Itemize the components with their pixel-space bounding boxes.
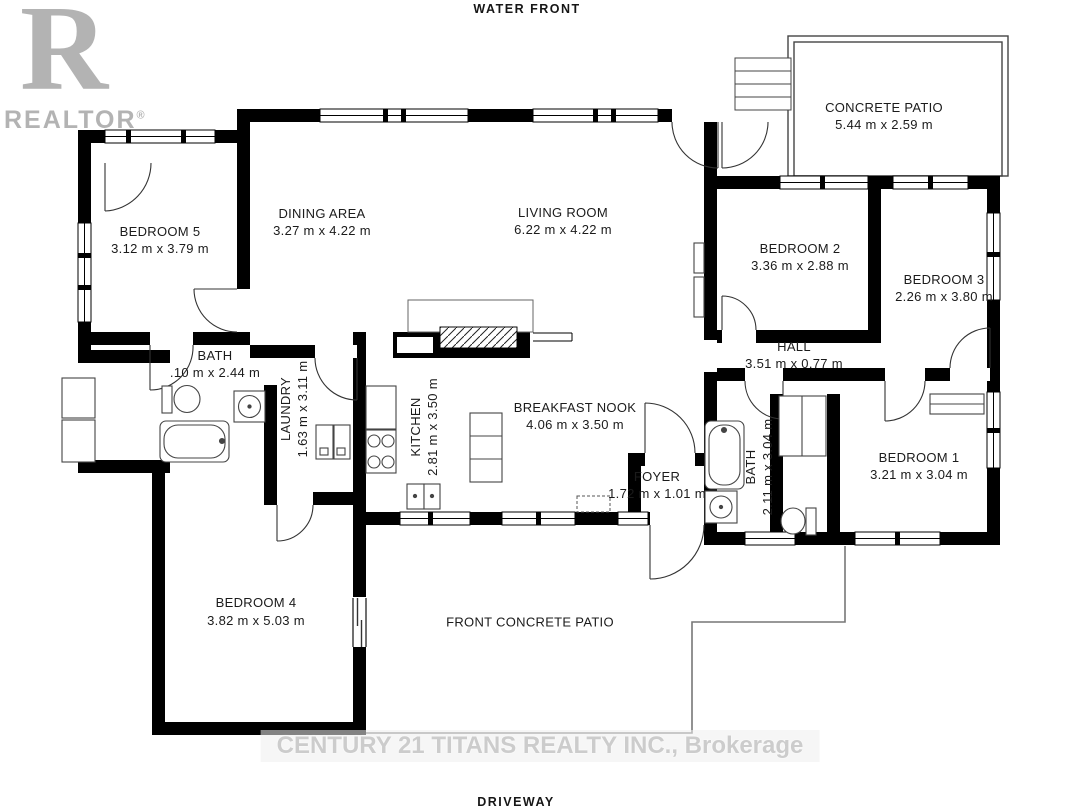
room-dims: 3.21 m x 3.04 m bbox=[870, 466, 968, 483]
room-name: CONCRETE PATIO bbox=[825, 99, 943, 116]
room-dims: 3.82 m x 5.03 m bbox=[207, 612, 305, 630]
room-label-bedroom5: BEDROOM 5 3.12 m x 3.79 m bbox=[111, 223, 209, 257]
room-dims: 3.27 m x 4.22 m bbox=[273, 222, 371, 239]
nook-cabinet-dashed bbox=[577, 496, 610, 512]
room-label-bedroom3: BEDROOM 3 2.26 m x 3.80 m bbox=[895, 271, 993, 305]
room-label-bath-main: BATH .10 m x 2.44 m bbox=[170, 347, 260, 381]
room-label-foyer: FOYER 1.72 m x 1.01 m bbox=[608, 468, 706, 502]
room-dims: 4.06 m x 3.50 m bbox=[514, 416, 636, 433]
room-name: FOYER bbox=[608, 468, 706, 485]
room-label-bedroom1: BEDROOM 1 3.21 m x 3.04 m bbox=[870, 449, 968, 483]
room-label-bath-ensuite: BATH 2.11 m x 3.04 m bbox=[742, 419, 776, 516]
linen-closet bbox=[62, 378, 95, 418]
room-name: BEDROOM 5 bbox=[111, 223, 209, 240]
room-name: BEDROOM 4 bbox=[207, 594, 305, 612]
room-name: BEDROOM 1 bbox=[870, 449, 968, 466]
room-name: BATH bbox=[742, 419, 759, 516]
fixtures bbox=[62, 243, 984, 535]
room-name: HALL bbox=[745, 338, 843, 355]
brokerage-watermark: CENTURY 21 TITANS REALTY INC., Brokerage bbox=[261, 730, 820, 762]
room-dims: 3.51 m x 0.77 m bbox=[745, 355, 843, 372]
room-dims: 2.81 m x 3.50 m bbox=[424, 378, 441, 476]
room-name: BEDROOM 2 bbox=[751, 240, 849, 257]
floorplan-page: R REALTOR® bbox=[0, 0, 1080, 810]
room-label-breakfast-nook: BREAKFAST NOOK 4.06 m x 3.50 m bbox=[514, 399, 636, 433]
room-label-bedroom2: BEDROOM 2 3.36 m x 2.88 m bbox=[751, 240, 849, 274]
room-name: LAUNDRY bbox=[277, 361, 294, 458]
room-name: DINING AREA bbox=[273, 205, 371, 222]
room-name: BEDROOM 3 bbox=[895, 271, 993, 288]
toilet-main bbox=[162, 386, 172, 413]
room-dims: 3.12 m x 3.79 m bbox=[111, 240, 209, 257]
waterfront-label: WATER FRONT bbox=[473, 2, 580, 16]
room-dims: 1.63 m x 3.11 m bbox=[294, 361, 311, 458]
room-label-front-patio: FRONT CONCRETE PATIO bbox=[446, 614, 614, 631]
room-label-dining-area: DINING AREA 3.27 m x 4.22 m bbox=[273, 205, 371, 239]
room-name: BREAKFAST NOOK bbox=[514, 399, 636, 416]
room-dims: 3.36 m x 2.88 m bbox=[751, 257, 849, 274]
room-label-bedroom4: BEDROOM 4 3.82 m x 5.03 m bbox=[207, 594, 305, 630]
driveway-label: DRIVEWAY bbox=[477, 795, 555, 809]
toilet-ensuite bbox=[781, 508, 805, 534]
room-label-hall: HALL 3.51 m x 0.77 m bbox=[745, 338, 843, 372]
kitchen-peninsula bbox=[470, 413, 502, 482]
room-dims: 2.26 m x 3.80 m bbox=[895, 288, 993, 305]
front-patio-outline bbox=[366, 546, 845, 733]
room-name: BATH bbox=[170, 347, 260, 364]
room-label-living-room: LIVING ROOM 6.22 m x 4.22 m bbox=[514, 204, 612, 238]
room-dims: 6.22 m x 4.22 m bbox=[514, 221, 612, 238]
room-name: LIVING ROOM bbox=[514, 204, 612, 221]
room-dims: .10 m x 2.44 m bbox=[170, 364, 260, 381]
room-label-concrete-patio: CONCRETE PATIO 5.44 m x 2.59 m bbox=[825, 99, 943, 133]
living-closet bbox=[694, 243, 704, 273]
room-label-laundry: LAUNDRY 1.63 m x 3.11 m bbox=[277, 361, 311, 458]
fridge bbox=[366, 386, 396, 429]
room-name: KITCHEN bbox=[407, 378, 424, 476]
room-name: FRONT CONCRETE PATIO bbox=[446, 614, 614, 631]
patio-stairs bbox=[735, 58, 791, 110]
room-dims: 1.72 m x 1.01 m bbox=[608, 485, 706, 502]
room-dims: 5.44 m x 2.59 m bbox=[825, 116, 943, 133]
room-dims: 2.11 m x 3.04 m bbox=[759, 419, 776, 516]
room-label-kitchen: KITCHEN 2.81 m x 3.50 m bbox=[407, 378, 441, 476]
